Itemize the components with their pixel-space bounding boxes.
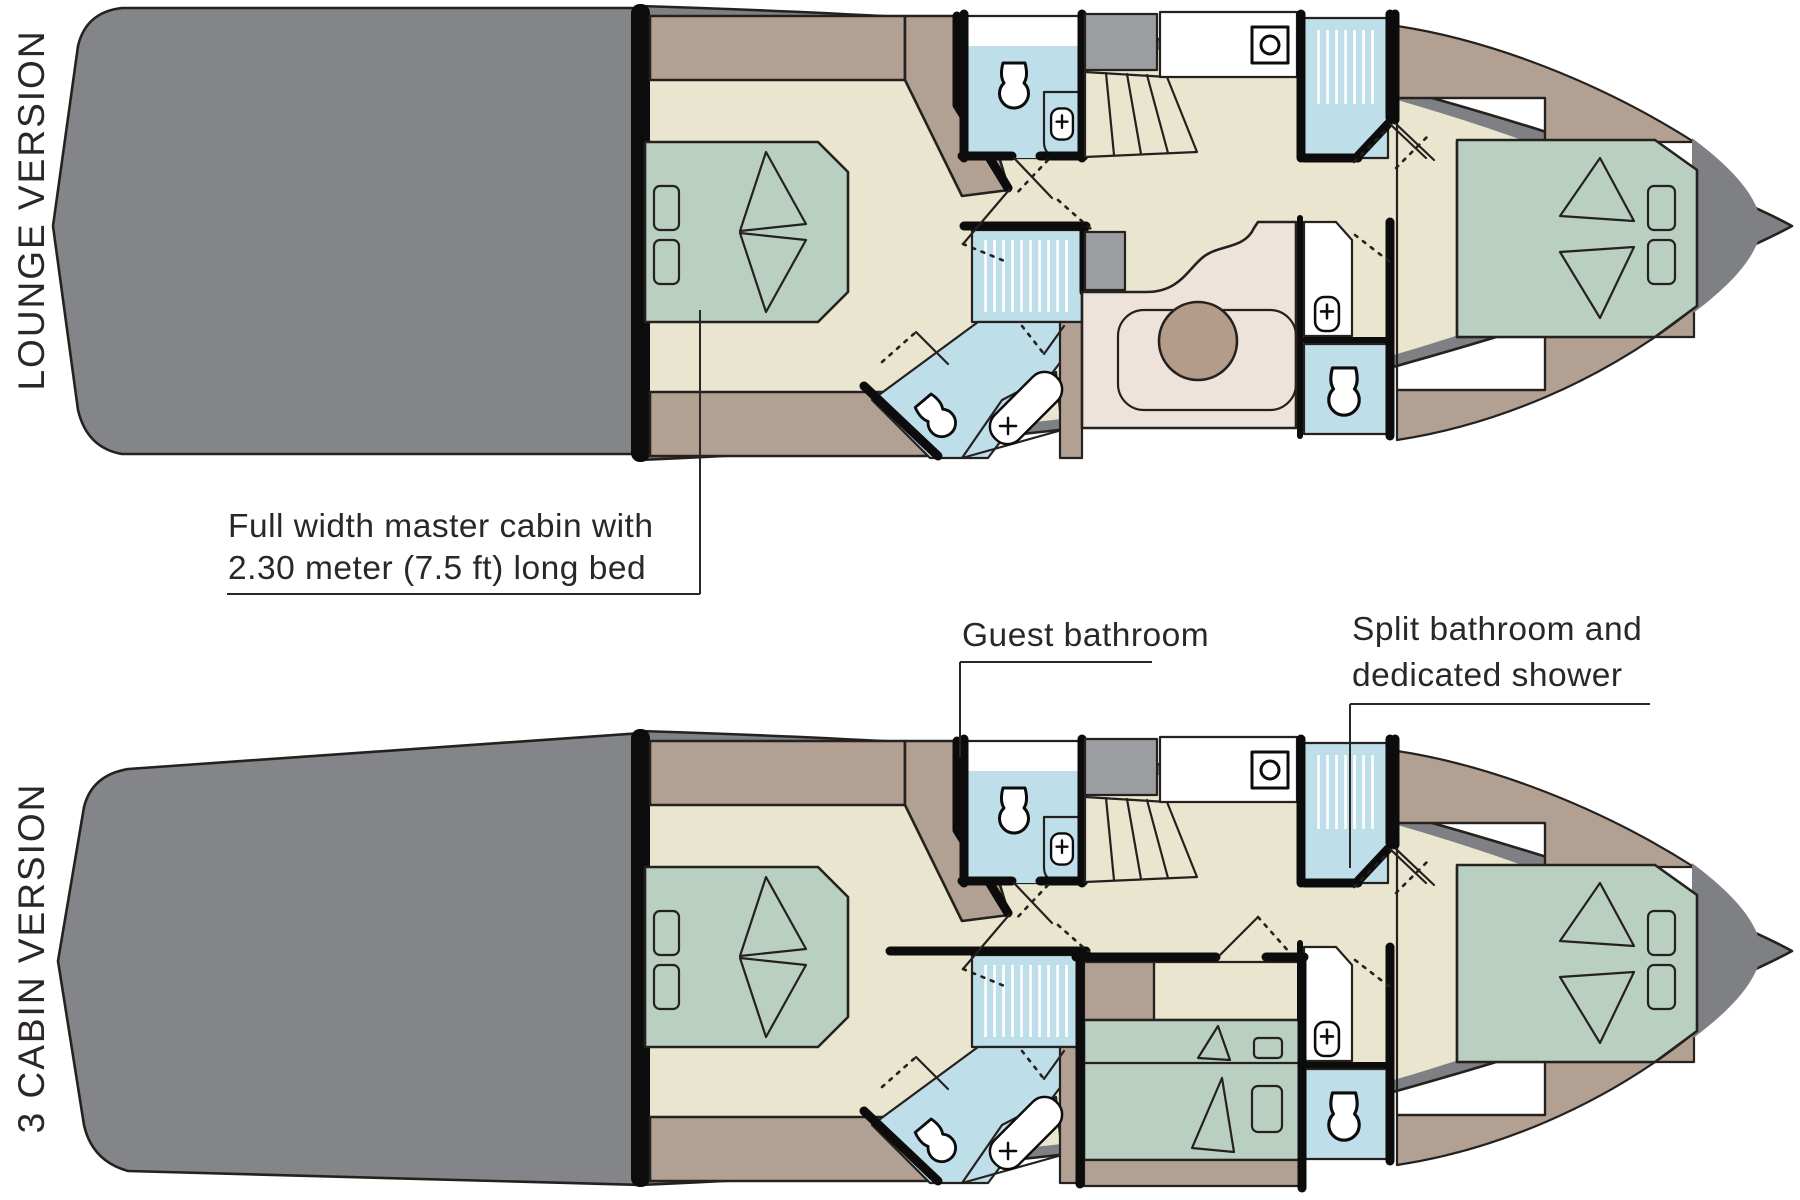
cabinet-box <box>1085 232 1125 290</box>
label-lounge-version: LOUNGE VERSION <box>11 29 52 390</box>
annotation-text: Split bathroom and <box>1352 611 1642 648</box>
annotation-text: 2.30 meter (7.5 ft) long bed <box>228 550 646 587</box>
pillow <box>1252 1086 1282 1132</box>
swim-platform <box>58 733 642 1185</box>
pillow <box>1254 1038 1282 1058</box>
cabin-shelf <box>1084 1160 1300 1186</box>
three-cabin-version-plan <box>58 729 1792 1188</box>
annotation-text: dedicated shower <box>1352 657 1623 694</box>
label-3-cabin-version: 3 CABIN VERSION <box>11 783 52 1134</box>
cabin-cabinet <box>1084 962 1154 1020</box>
annotation-text: Guest bathroom <box>962 617 1209 654</box>
lounge-table <box>1159 302 1237 380</box>
yacht-floor-plan-diagram: Full width master cabin with 2.30 meter … <box>0 0 1800 1200</box>
swim-platform <box>53 8 642 454</box>
lounge-version-plan <box>53 4 1792 462</box>
annotation-text: Full width master cabin with <box>228 508 653 545</box>
